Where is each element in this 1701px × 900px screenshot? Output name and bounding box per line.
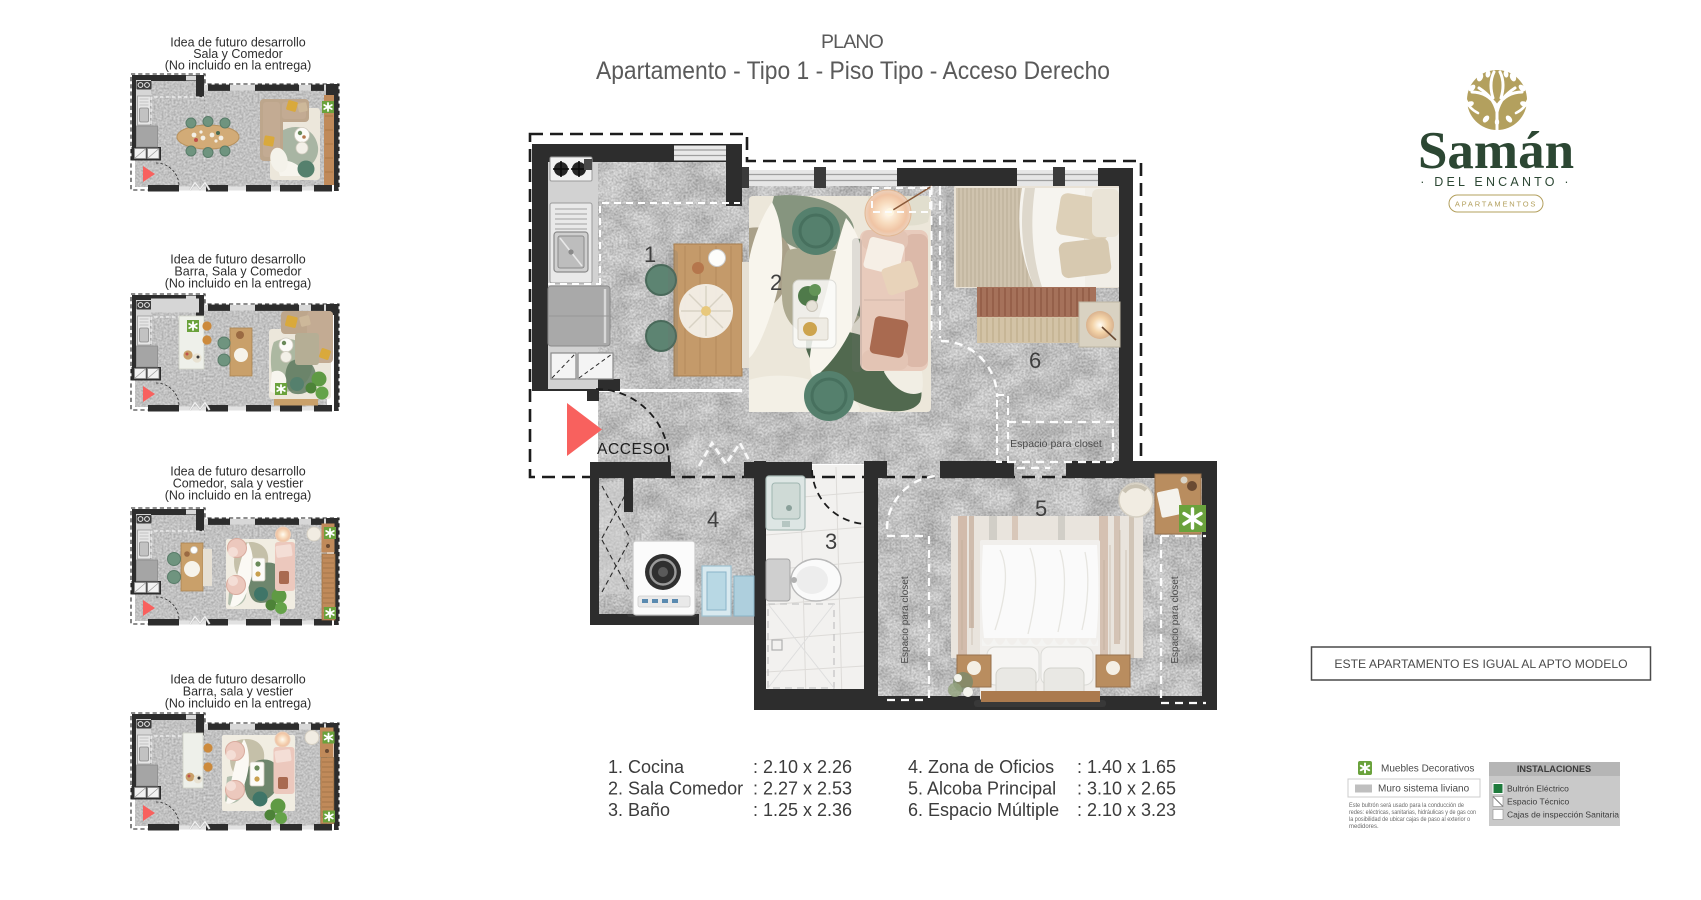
svg-text:: 3.10 x 2.65: : 3.10 x 2.65 — [1077, 779, 1176, 799]
svg-text:Espacio para closet: Espacio para closet — [900, 576, 911, 663]
svg-text:la posibilidad de ubicar cajas: la posibilidad de ubicar cajas de paso a… — [1349, 817, 1471, 823]
svg-text:3. Baño: 3. Baño — [608, 800, 670, 820]
svg-text:· DEL ENCANTO ·: · DEL ENCANTO · — [1420, 175, 1572, 189]
svg-text:Este bultrón será usado para l: Este bultrón será usado para la conducci… — [1349, 803, 1465, 809]
svg-text:5: 5 — [1035, 496, 1047, 521]
svg-text:Cajas de inspección Sanitaria: Cajas de inspección Sanitaria — [1507, 810, 1619, 820]
svg-text:: 1.40 x 1.65: : 1.40 x 1.65 — [1077, 757, 1176, 777]
svg-text:1. Cocina: 1. Cocina — [608, 757, 685, 777]
svg-text:(No incluido en la entrega): (No incluido en la entrega) — [165, 277, 312, 291]
svg-text:Espacio para closet: Espacio para closet — [1170, 576, 1181, 663]
svg-text:Espacio para closet: Espacio para closet — [1010, 438, 1102, 450]
svg-text:: 2.27 x 2.53: : 2.27 x 2.53 — [753, 779, 852, 799]
svg-text:: 2.10 x 3.23: : 2.10 x 3.23 — [1077, 800, 1176, 820]
svg-text:6. Espacio Múltiple: 6. Espacio Múltiple — [908, 800, 1059, 820]
svg-text:5. Alcoba Principal: 5. Alcoba Principal — [908, 779, 1056, 799]
svg-text:Muro sistema liviano: Muro sistema liviano — [1378, 784, 1470, 795]
svg-text:Muebles Decorativos: Muebles Decorativos — [1381, 764, 1474, 775]
svg-text:Samán: Samán — [1418, 122, 1574, 180]
svg-text:4. Zona de Oficios: 4. Zona de Oficios — [908, 757, 1054, 777]
svg-text:APARTAMENTOS: APARTAMENTOS — [1455, 200, 1537, 209]
svg-text:medidores.: medidores. — [1349, 824, 1379, 830]
svg-text:(No incluido en la entrega): (No incluido en la entrega) — [165, 697, 312, 711]
svg-text:Bultrón Eléctrico: Bultrón Eléctrico — [1507, 784, 1569, 794]
svg-text:ACCESO: ACCESO — [597, 441, 666, 458]
svg-text:INSTALACIONES: INSTALACIONES — [1517, 764, 1591, 774]
svg-text:(No incluido en la entrega): (No incluido en la entrega) — [165, 489, 312, 503]
svg-text:Espacio Técnico: Espacio Técnico — [1507, 797, 1569, 807]
svg-text:4: 4 — [707, 507, 719, 532]
svg-text:(No incluido en la entrega): (No incluido en la entrega) — [165, 59, 312, 73]
svg-text:: 2.10 x 2.26: : 2.10 x 2.26 — [753, 757, 852, 777]
svg-text:ESTE APARTAMENTO ES IGUAL AL A: ESTE APARTAMENTO ES IGUAL AL APTO MODELO — [1334, 657, 1627, 671]
svg-text:redes: eléctricas, sanitarias,: redes: eléctricas, sanitarias, hidráulic… — [1349, 810, 1476, 816]
svg-text:2. Sala Comedor: 2. Sala Comedor — [608, 779, 743, 799]
svg-text:6: 6 — [1029, 348, 1041, 373]
svg-text:1: 1 — [644, 242, 656, 267]
svg-text:Apartamento - Tipo 1 - Piso Ti: Apartamento - Tipo 1 - Piso Tipo - Acces… — [596, 57, 1110, 85]
svg-text:PLANO: PLANO — [821, 31, 885, 53]
svg-text:3: 3 — [825, 529, 837, 554]
svg-text:: 1.25 x 2.36: : 1.25 x 2.36 — [753, 800, 852, 820]
svg-text:2: 2 — [770, 270, 782, 295]
